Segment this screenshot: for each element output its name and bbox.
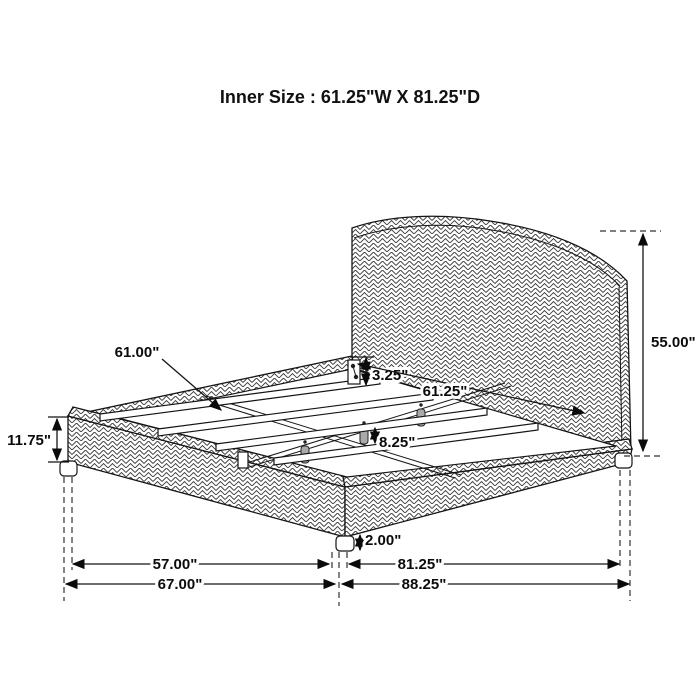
dim-foot-span-inner-label: 57.00" [153, 556, 198, 573]
bed-dimension-diagram: Inner Size : 61.25"W X 81.25"D [0, 0, 700, 700]
dim-headboard-height-label: 55.00" [651, 334, 696, 351]
inner-size-title: Inner Size : 61.25"W X 81.25"D [220, 87, 480, 107]
bed-leg-right [615, 453, 632, 468]
dim-side-span-inner-label: 81.25" [398, 556, 443, 573]
dim-side-span-inner: 81.25" [349, 556, 619, 573]
dim-center-leg-height-label: 8.25" [379, 434, 415, 451]
dim-foot-span-overall-label: 67.00" [158, 576, 203, 593]
dim-corner-leg-height: 2.00" [360, 532, 401, 550]
dim-foot-span-overall: 67.00" [66, 576, 335, 593]
dim-headboard-height: 55.00" [643, 234, 696, 451]
dim-inner-width-label: 61.25" [423, 383, 468, 400]
dim-footboard-height: 11.75" [7, 417, 69, 462]
dim-corner-leg-height-label: 2.00" [365, 532, 401, 549]
dim-side-span-overall: 88.25" [342, 576, 629, 593]
bed-leg-front [336, 536, 354, 551]
bed-leg-left [60, 461, 77, 476]
bed-dimension-diagram-page: Inner Size : 61.25"W X 81.25"D [0, 0, 700, 700]
dim-foot-span-inner: 57.00" [73, 556, 329, 573]
center-rail-bracket [238, 452, 248, 468]
bed-frame [60, 216, 632, 551]
dim-footboard-height-label: 11.75" [7, 432, 51, 449]
dim-rail-height-label: 3.25" [372, 367, 408, 384]
dim-side-span-overall-label: 88.25" [402, 576, 447, 593]
dim-slat-length-label: 61.00" [115, 344, 160, 361]
